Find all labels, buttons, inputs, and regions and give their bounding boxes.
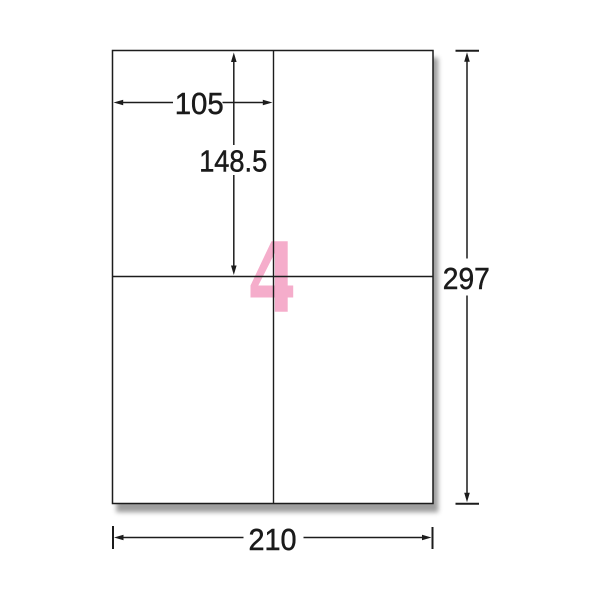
svg-text:105: 105 (175, 87, 224, 121)
svg-text:297: 297 (443, 262, 490, 296)
svg-text:148.5: 148.5 (199, 145, 267, 179)
svg-text:210: 210 (249, 523, 297, 557)
